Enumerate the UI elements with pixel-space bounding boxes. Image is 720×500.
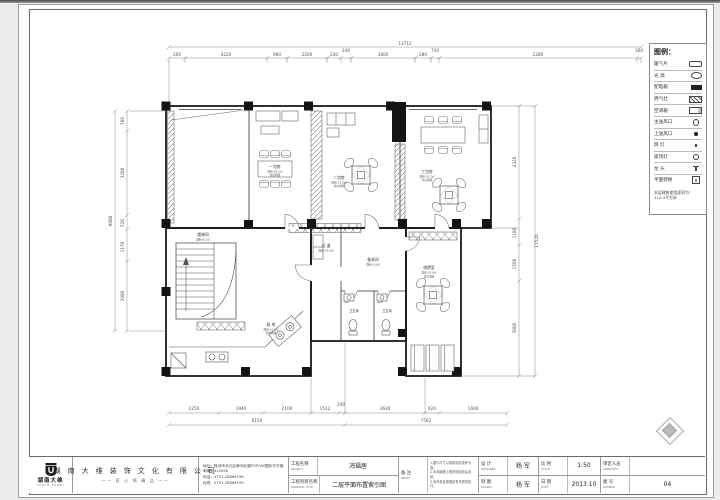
company-slogan: —— 匠 心 铸 精 品 ——	[101, 478, 169, 484]
svg-text:卫生间: 卫生间	[382, 308, 392, 313]
svg-text:2080: 2080	[120, 290, 125, 301]
dim-bottom	[167, 343, 509, 427]
downlight-icon	[690, 144, 702, 147]
svg-text:280: 280	[419, 52, 427, 57]
logo-subtitle: HUNAN DAWEI	[37, 484, 65, 487]
memo-text: 1.图中尺寸以现场实际放样为准； 2.水电隐蔽工程须经验收后封闭； 3.未尽事宜…	[428, 457, 478, 493]
svg-text:卫生间: 卫生间	[349, 308, 359, 313]
date-row: 日 期 DATE 2013.10	[539, 476, 600, 494]
svg-text:2100: 2100	[282, 406, 293, 411]
svg-text:棋牌室: 棋牌室	[423, 265, 435, 270]
memo-label-en: MEMO	[401, 476, 425, 480]
svg-text:730: 730	[431, 48, 439, 53]
svg-text:仿古地砖: 仿古地砖	[422, 178, 433, 182]
approved-label-en: APPROVED	[603, 467, 627, 471]
project-name-row: 工程名称 PROJECT 鸿福居	[289, 457, 398, 476]
svg-text:200: 200	[173, 52, 181, 57]
svg-text:240: 240	[337, 402, 345, 407]
svg-text:6150: 6150	[252, 418, 263, 423]
number-label-en: NUMBER	[603, 485, 627, 489]
svg-text:面积:8.2㎡: 面积:8.2㎡	[196, 238, 210, 242]
scale-row: 比 例 SCALE 1:50	[539, 457, 600, 476]
svg-text:520: 520	[120, 219, 125, 227]
distribution-box-icon	[690, 85, 702, 90]
legend-note: 本层建筑使用面积为：112.4平方米	[654, 190, 702, 201]
stairs	[176, 243, 236, 319]
svg-text:厨 房: 厨 房	[267, 322, 276, 327]
dim-right	[461, 104, 537, 378]
drawer-label-en: DRAWN	[481, 485, 505, 489]
svg-text:仿古地砖: 仿古地砖	[334, 184, 345, 188]
dim-left-text: 9080 780 3200 520 1170 2080	[108, 117, 125, 302]
legend-item: 光 源	[654, 71, 702, 83]
legend-panel: 图例： 暖气片 光 源 配电箱 燃气灶 空调箱 主送风口 上送风口	[649, 43, 707, 215]
svg-text:1940: 1940	[236, 406, 247, 411]
approved-row: 审定人员 APPROVED	[601, 457, 705, 476]
designer-value: 杨 军	[508, 457, 538, 475]
decorative-stamp	[656, 417, 682, 443]
svg-text:3000: 3000	[512, 322, 517, 333]
page-top-edge	[0, 0, 720, 3]
project-label-en: PROJECT	[291, 467, 315, 471]
svg-text:一包房: 一包房	[269, 164, 281, 169]
legend-item: 空调箱	[654, 105, 702, 117]
supply-vent-icon	[690, 119, 702, 126]
drawing-number-value: 04	[630, 476, 705, 494]
faucet-icon	[690, 166, 702, 172]
dim-top	[167, 45, 643, 102]
svg-text:面积:18.6㎡: 面积:18.6㎡	[319, 249, 334, 253]
legend-item: 主送风口	[654, 117, 702, 129]
svg-text:7562: 7562	[421, 418, 432, 423]
title-block: 湖南大维 HUNAN DAWEI 湖 南 大 维 装 饰 文 化 有 限 公 司…	[29, 456, 705, 493]
drawing-label-en: DRAWING TITLE	[291, 485, 317, 489]
svg-text:4220: 4220	[221, 52, 232, 57]
contact-fax: 传真：0731-28869159	[203, 481, 284, 487]
scale-label-en: SCALE	[541, 467, 565, 471]
svg-text:防滑地砖: 防滑地砖	[266, 331, 277, 335]
company-name: 湖 南 大 维 装 饰 文 化 有 限 公 司	[54, 466, 218, 476]
svg-text:9080: 9080	[108, 215, 113, 226]
svg-text:11520: 11520	[534, 234, 539, 248]
drawing-title-row: 工程项目名称 DRAWING TITLE 二层平面布置索引图	[289, 476, 398, 494]
company-contact-box: 地址：株洲市天元区黄河北路POPOW国际写字楼4楼 邮编：412000 电话：0…	[199, 457, 289, 493]
svg-text:二包房: 二包房	[333, 175, 345, 180]
drawing-sheet: 一包房 二包房 三包房 过 道 楼梯间 厨 房 备餐间 卫生间 卫生间 棋牌室 …	[18, 4, 714, 498]
company-name-box: 湖 南 大 维 装 饰 文 化 有 限 公 司 —— 匠 心 铸 精 品 ——	[73, 457, 199, 493]
dim-top-text: 13712 200 4220 980 2200 230 240 3600 280…	[173, 41, 643, 57]
legend-item: 上送风口	[654, 129, 702, 141]
legend-item: 吸顶灯	[654, 152, 702, 164]
svg-text:360: 360	[635, 48, 643, 53]
legend-item: 燃气灶	[654, 94, 702, 106]
legend-item: 龙 头	[654, 163, 702, 175]
svg-text:1600: 1600	[468, 406, 479, 411]
svg-text:三包房: 三包房	[421, 169, 433, 174]
svg-text:1180: 1180	[512, 227, 517, 238]
radiator-icon	[689, 61, 702, 67]
svg-text:240: 240	[342, 48, 350, 53]
plan-symbol-icon	[690, 176, 702, 184]
designer-fields: 设 计 DESIGNER 杨 军 制 图 DRAWN 杨 军	[479, 457, 539, 493]
svg-text:1512: 1512	[320, 406, 331, 411]
number-row: 图 号 NUMBER 04	[601, 476, 705, 494]
svg-text:980: 980	[273, 52, 281, 57]
legend-item: 配电箱	[654, 82, 702, 94]
drawer-value: 杨 军	[508, 476, 538, 494]
top-vent-icon	[690, 132, 702, 136]
svg-text:仿古地砖: 仿古地砖	[424, 275, 435, 279]
memo-box: 备 注 MEMO 1.图中尺寸以现场实际放样为准； 2.水电隐蔽工程须经验收后封…	[399, 457, 479, 493]
svg-text:仿古地砖: 仿古地砖	[270, 173, 281, 177]
svg-text:面积:6.8㎡: 面积:6.8㎡	[366, 263, 380, 267]
kitchen-fixtures	[169, 311, 303, 368]
ac-unit-icon	[689, 107, 702, 114]
svg-text:2200: 2200	[302, 52, 313, 57]
svg-text:1170: 1170	[120, 241, 125, 252]
project-value: 鸿福居	[318, 457, 398, 475]
ceiling-lamp-icon	[690, 154, 702, 160]
page: { "legend": { "title": "图例：", "items": […	[0, 0, 720, 500]
floor-plan: 一包房 二包房 三包房 过 道 楼梯间 厨 房 备餐间 卫生间 卫生间 棋牌室 …	[89, 23, 649, 453]
light-icon	[690, 72, 702, 79]
date-value: 2013.10	[568, 476, 600, 494]
drawer-row: 制 图 DRAWN 杨 军	[479, 476, 538, 494]
scale-value: 1:50	[568, 457, 600, 475]
legend-title: 图例：	[654, 47, 702, 57]
svg-text:230: 230	[330, 52, 338, 57]
date-label-en: DATE	[541, 485, 565, 489]
dim-bottom-text: 2250 1940 2100 1512 240 3630 620 1600 61…	[189, 402, 479, 423]
legend-item: 暖气片	[654, 59, 702, 71]
drawing-title-value: 二层平面布置索引图	[320, 476, 398, 494]
svg-text:780: 780	[120, 117, 125, 125]
svg-text:3600: 3600	[378, 52, 389, 57]
svg-text:620: 620	[428, 406, 436, 411]
scale-date-fields: 比 例 SCALE 1:50 日 期 DATE 2013.10	[539, 457, 601, 493]
svg-text:3200: 3200	[120, 167, 125, 178]
gas-stove-icon	[689, 96, 702, 103]
legend-item: 筒 灯	[654, 140, 702, 152]
svg-text:2280: 2280	[533, 52, 544, 57]
kitchen-sink	[206, 352, 228, 362]
svg-text:2250: 2250	[189, 406, 200, 411]
approved-value	[630, 457, 705, 475]
bathroom-fixtures	[344, 294, 390, 335]
svg-text:过 道: 过 道	[322, 243, 331, 248]
svg-text:4320: 4320	[512, 156, 517, 167]
project-fields: 工程名称 PROJECT 鸿福居 工程项目名称 DRAWING TITLE 二层…	[289, 457, 399, 493]
svg-text:楼梯间: 楼梯间	[197, 232, 209, 237]
terrace-diagonal	[171, 110, 245, 120]
approval-fields: 审定人员 APPROVED 图 号 NUMBER 04	[601, 457, 705, 493]
legend-item: 平面转换	[654, 175, 702, 186]
designer-label-en: DESIGNER	[481, 467, 505, 471]
svg-text:1560: 1560	[512, 258, 517, 269]
svg-text:13712: 13712	[398, 41, 412, 46]
designer-row: 设 计 DESIGNER 杨 军	[479, 457, 538, 476]
svg-text:3630: 3630	[380, 406, 391, 411]
svg-text:备餐间: 备餐间	[367, 257, 379, 262]
